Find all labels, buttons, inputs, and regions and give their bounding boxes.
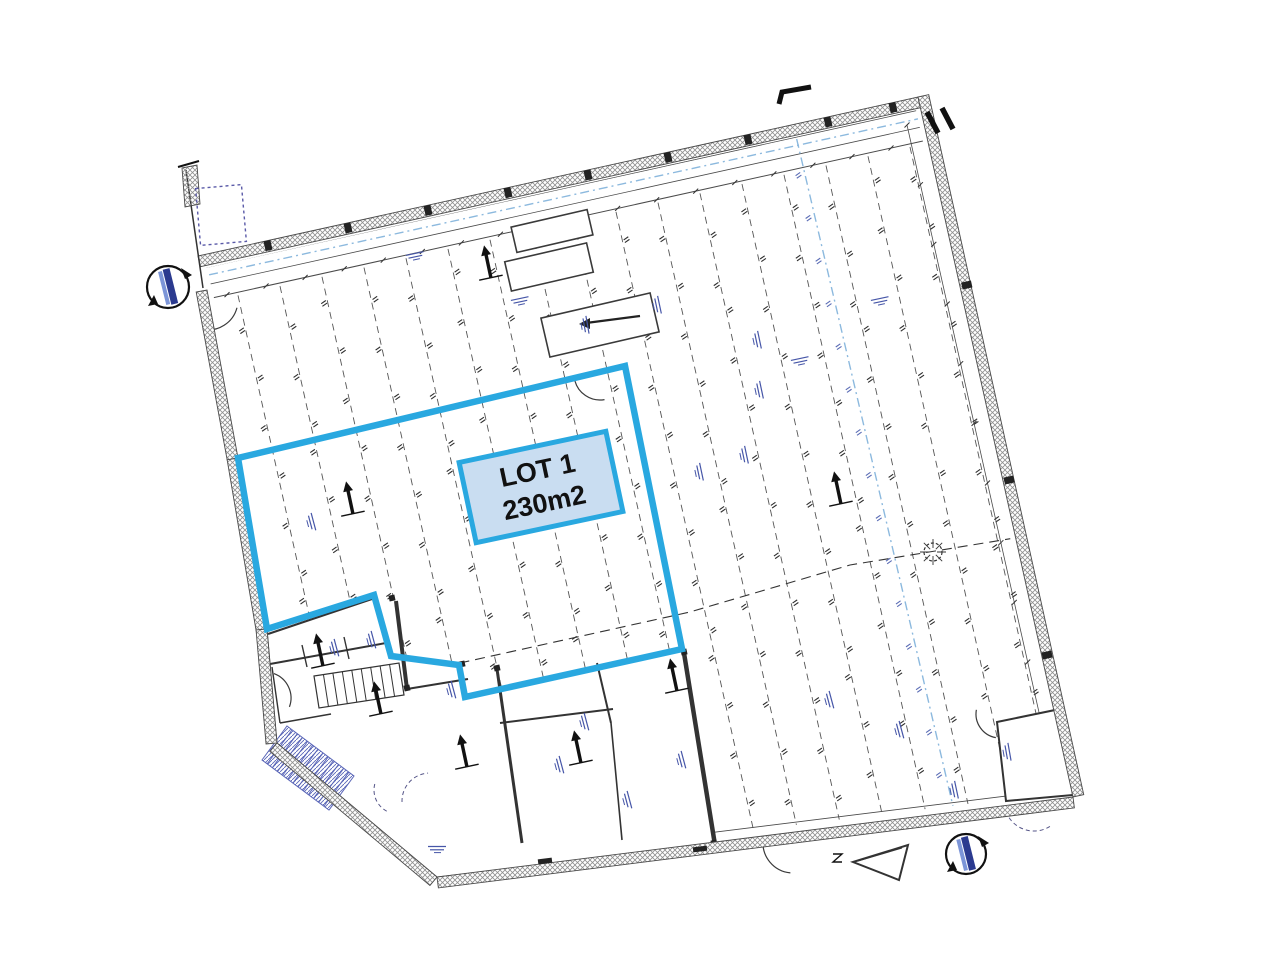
floor-plan-drawing: LOT 1 230m2 bbox=[0, 0, 1280, 961]
floor-plan-page: LOT 1 230m2 bbox=[0, 0, 1280, 961]
